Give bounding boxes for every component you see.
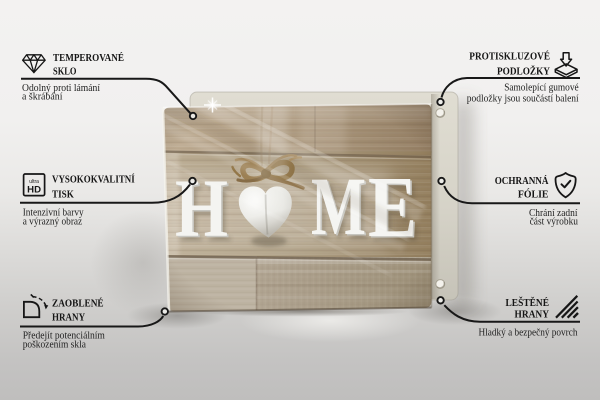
- svg-text:a výrazný obraz: a výrazný obraz: [23, 217, 83, 228]
- svg-text:LEŠTĚNÉ: LEŠTĚNÉ: [506, 296, 550, 309]
- svg-text:TEMPEROVANÉ: TEMPEROVANÉ: [53, 52, 124, 64]
- svg-text:HRANY: HRANY: [52, 312, 85, 324]
- svg-text:HD: HD: [27, 185, 41, 196]
- svg-text:Samolepící gumové: Samolepící gumové: [504, 83, 579, 94]
- svg-text:HRANY: HRANY: [515, 309, 550, 321]
- svg-text:TISK: TISK: [52, 189, 74, 201]
- svg-text:ZAOBLENÉ: ZAOBLENÉ: [52, 297, 104, 309]
- svg-text:PODLOŽKY: PODLOŽKY: [497, 66, 550, 78]
- svg-text:a škrábání: a škrábání: [22, 91, 63, 102]
- svg-text:VYSOKOKVALITNÍ: VYSOKOKVALITNÍ: [52, 174, 135, 186]
- svg-text:PROTISKLUZOVÉ: PROTISKLUZOVÉ: [469, 51, 550, 63]
- svg-text:část výrobku: část výrobku: [530, 217, 579, 228]
- svg-text:Hladký a bezpečný povrch: Hladký a bezpečný povrch: [479, 328, 579, 339]
- svg-text:podložky jsou součástí balení: podložky jsou součástí balení: [467, 94, 579, 105]
- svg-text:FÓLIE: FÓLIE: [518, 189, 549, 201]
- svg-text:poškozením skla: poškozením skla: [23, 339, 87, 350]
- svg-text:SKLO: SKLO: [53, 65, 77, 77]
- svg-text:OCHRANNÁ: OCHRANNÁ: [495, 175, 549, 187]
